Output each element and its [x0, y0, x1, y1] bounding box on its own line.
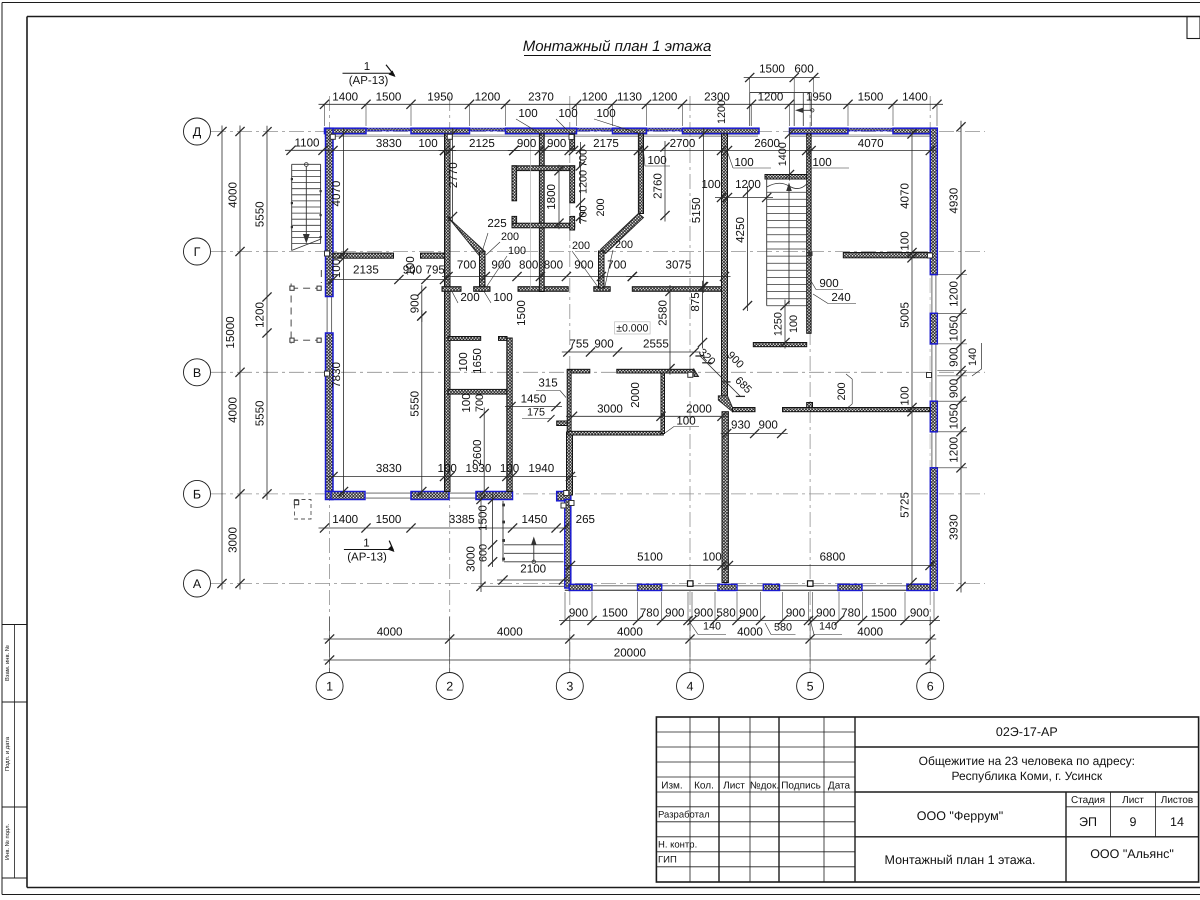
svg-text:225: 225	[487, 217, 506, 230]
svg-text:100: 100	[647, 154, 666, 167]
svg-text:700: 700	[578, 149, 590, 167]
svg-text:1: 1	[364, 61, 370, 73]
svg-text:900: 900	[517, 137, 536, 150]
svg-text:700: 700	[607, 259, 626, 272]
svg-text:600: 600	[478, 544, 490, 562]
svg-text:900: 900	[403, 264, 422, 277]
svg-text:1200: 1200	[948, 437, 961, 463]
svg-text:20000: 20000	[614, 647, 646, 660]
svg-text:4250: 4250	[734, 217, 747, 243]
svg-text:Дата: Дата	[828, 781, 851, 792]
svg-text:900: 900	[409, 294, 422, 313]
svg-text:1400: 1400	[332, 513, 358, 526]
svg-text:5550: 5550	[254, 401, 267, 427]
svg-text:100: 100	[596, 107, 615, 120]
svg-text:6: 6	[927, 680, 934, 694]
svg-text:2: 2	[446, 680, 453, 694]
svg-text:265: 265	[576, 513, 595, 526]
svg-text:100: 100	[899, 386, 912, 405]
svg-text:140: 140	[703, 621, 721, 633]
svg-text:5550: 5550	[254, 201, 267, 227]
svg-text:6800: 6800	[820, 551, 846, 564]
svg-text:900: 900	[948, 379, 961, 398]
svg-text:900: 900	[594, 338, 613, 351]
svg-text:1200: 1200	[475, 90, 501, 103]
svg-text:2600: 2600	[471, 440, 484, 466]
svg-text:900: 900	[786, 607, 805, 620]
svg-text:2135: 2135	[353, 264, 379, 277]
svg-text:100: 100	[788, 315, 800, 333]
svg-text:4: 4	[687, 680, 694, 694]
svg-text:15000: 15000	[224, 316, 237, 348]
svg-text:200: 200	[615, 239, 633, 251]
svg-text:5005: 5005	[899, 302, 912, 328]
svg-text:5150: 5150	[690, 197, 703, 223]
svg-text:755: 755	[569, 338, 588, 351]
svg-text:1500: 1500	[602, 607, 628, 620]
svg-text:Листов: Листов	[1161, 795, 1194, 806]
svg-text:100: 100	[518, 107, 537, 120]
svg-text:Республика Коми, г. Усинск: Республика Коми, г. Усинск	[951, 769, 1102, 783]
svg-text:2000: 2000	[629, 382, 642, 408]
svg-text:1200: 1200	[578, 170, 590, 194]
svg-text:4000: 4000	[227, 182, 240, 208]
svg-text:1500: 1500	[376, 90, 402, 103]
svg-text:2175: 2175	[593, 137, 619, 150]
svg-text:Общежитие на 23 человека по ад: Общежитие на 23 человека по адресу:	[919, 754, 1135, 768]
svg-text:1200: 1200	[582, 90, 608, 103]
svg-text:1200: 1200	[948, 281, 961, 307]
svg-text:100: 100	[558, 107, 577, 120]
svg-text:100: 100	[438, 462, 457, 475]
svg-text:ГИП: ГИП	[658, 855, 677, 866]
svg-text:9: 9	[1130, 815, 1137, 829]
svg-text:200: 200	[501, 231, 519, 243]
svg-text:1450: 1450	[521, 393, 547, 406]
svg-text:5725: 5725	[899, 492, 912, 518]
svg-text:1500: 1500	[515, 300, 528, 326]
svg-text:ООО "Альянс": ООО "Альянс"	[1090, 847, 1174, 861]
svg-text:100: 100	[701, 178, 720, 191]
svg-text:1130: 1130	[617, 90, 642, 103]
svg-text:Подп. и дата: Подп. и дата	[5, 736, 11, 771]
svg-text:200: 200	[572, 240, 590, 252]
svg-text:3000: 3000	[597, 403, 623, 416]
svg-text:Подпись: Подпись	[781, 781, 821, 792]
svg-text:Монтажный план 1 этажа: Монтажный план 1 этажа	[523, 38, 712, 55]
svg-text:1250: 1250	[773, 312, 785, 336]
svg-text:1940: 1940	[528, 462, 554, 475]
svg-text:3830: 3830	[376, 137, 402, 150]
svg-text:900: 900	[694, 607, 713, 620]
svg-text:1200: 1200	[716, 100, 728, 124]
svg-text:900: 900	[819, 277, 838, 290]
svg-text:Лист: Лист	[723, 781, 745, 792]
svg-text:1200: 1200	[254, 302, 267, 328]
svg-text:Г: Г	[194, 245, 201, 259]
svg-text:2600: 2600	[754, 137, 780, 150]
svg-text:(АР-13): (АР-13)	[349, 75, 389, 87]
svg-text:2580: 2580	[657, 300, 670, 326]
svg-text:780: 780	[640, 607, 659, 620]
svg-text:1050: 1050	[948, 404, 961, 430]
svg-text:4000: 4000	[497, 626, 523, 639]
svg-text:±0.000: ±0.000	[616, 322, 648, 334]
svg-text:100: 100	[899, 231, 912, 250]
svg-text:100: 100	[460, 393, 473, 412]
svg-text:580: 580	[716, 607, 735, 620]
svg-text:100: 100	[500, 462, 519, 475]
svg-text:1: 1	[326, 680, 333, 694]
svg-text:4000: 4000	[857, 626, 883, 639]
svg-text:В: В	[193, 366, 201, 380]
svg-text:900: 900	[910, 607, 929, 620]
svg-text:1400: 1400	[902, 90, 928, 103]
svg-text:240: 240	[831, 291, 850, 304]
svg-text:4000: 4000	[617, 626, 643, 639]
svg-text:Н. контр.: Н. контр.	[658, 840, 697, 851]
svg-text:7830: 7830	[330, 362, 343, 388]
svg-text:А: А	[193, 577, 202, 591]
svg-text:3: 3	[566, 680, 573, 694]
svg-text:2100: 2100	[520, 563, 546, 576]
svg-text:2555: 2555	[643, 338, 669, 351]
svg-text:14: 14	[1170, 815, 1184, 829]
svg-text:2760: 2760	[651, 173, 664, 199]
svg-text:5: 5	[807, 680, 814, 694]
svg-text:900: 900	[569, 607, 588, 620]
svg-text:Взам. инв. №: Взам. инв. №	[5, 645, 11, 681]
svg-text:1500: 1500	[871, 607, 897, 620]
svg-text:100: 100	[702, 551, 721, 564]
svg-text:175: 175	[527, 407, 545, 419]
svg-text:3385: 3385	[449, 513, 475, 526]
svg-text:(АР-13): (АР-13)	[347, 552, 387, 564]
svg-text:700: 700	[578, 205, 590, 223]
svg-text:3830: 3830	[376, 462, 402, 475]
svg-text:3000: 3000	[227, 527, 240, 553]
svg-text:Кол.: Кол.	[694, 781, 714, 792]
svg-text:100: 100	[734, 156, 753, 169]
svg-text:140: 140	[819, 621, 837, 633]
svg-text:ООО "Феррум": ООО "Феррум"	[917, 809, 1003, 823]
svg-text:Б: Б	[193, 487, 201, 501]
svg-text:4070: 4070	[899, 183, 912, 209]
svg-text:900: 900	[739, 607, 758, 620]
svg-text:600: 600	[794, 63, 813, 76]
svg-text:800: 800	[519, 259, 538, 272]
svg-text:3930: 3930	[948, 514, 961, 540]
svg-text:780: 780	[841, 607, 860, 620]
svg-text:100: 100	[812, 156, 831, 169]
svg-text:Лист: Лист	[1122, 795, 1144, 806]
svg-text:5550: 5550	[409, 391, 422, 417]
svg-text:1650: 1650	[471, 348, 484, 374]
svg-text:875: 875	[689, 292, 702, 311]
svg-text:580: 580	[774, 622, 792, 634]
svg-text:795: 795	[426, 264, 445, 277]
svg-text:900: 900	[665, 607, 684, 620]
svg-text:140: 140	[967, 348, 979, 366]
svg-text:1500: 1500	[376, 513, 402, 526]
svg-text:900: 900	[816, 607, 835, 620]
svg-text:100: 100	[676, 415, 695, 428]
svg-text:Разработал: Разработал	[658, 810, 710, 821]
svg-text:4930: 4930	[948, 188, 961, 214]
svg-text:200: 200	[460, 291, 479, 304]
svg-text:4000: 4000	[377, 626, 403, 639]
svg-text:1500: 1500	[858, 90, 884, 103]
svg-text:ЭП: ЭП	[1079, 815, 1097, 829]
svg-text:700: 700	[474, 394, 486, 412]
svg-text:900: 900	[948, 348, 961, 367]
svg-text:1950: 1950	[427, 90, 453, 103]
svg-text:3075: 3075	[666, 259, 692, 272]
svg-text:900: 900	[574, 259, 593, 272]
svg-text:930: 930	[731, 419, 750, 432]
svg-text:100: 100	[493, 291, 512, 304]
svg-text:4070: 4070	[330, 181, 343, 207]
svg-text:№док.: №док.	[750, 781, 779, 792]
svg-text:200: 200	[595, 198, 607, 216]
svg-text:Инв. № подл.: Инв. № подл.	[5, 824, 11, 860]
svg-text:Монтажный план 1 этажа.: Монтажный план 1 этажа.	[885, 853, 1036, 867]
svg-text:700: 700	[457, 259, 476, 272]
svg-text:2770: 2770	[447, 162, 460, 188]
svg-text:1200: 1200	[758, 90, 784, 103]
svg-text:1450: 1450	[522, 513, 548, 526]
svg-text:1200: 1200	[735, 178, 761, 191]
svg-text:4070: 4070	[858, 137, 884, 150]
svg-text:1100: 1100	[295, 137, 320, 150]
svg-text:1050: 1050	[948, 316, 961, 342]
svg-text:Д: Д	[193, 125, 202, 139]
svg-text:Стадия: Стадия	[1071, 795, 1105, 806]
svg-text:1950: 1950	[806, 90, 832, 103]
svg-text:4000: 4000	[737, 626, 763, 639]
svg-text:2125: 2125	[469, 137, 495, 150]
svg-text:Изм.: Изм.	[661, 781, 682, 792]
svg-text:200: 200	[836, 382, 848, 400]
svg-text:1500: 1500	[477, 505, 490, 531]
svg-text:900: 900	[759, 419, 778, 432]
svg-text:3000: 3000	[465, 546, 478, 572]
svg-text:315: 315	[538, 377, 557, 390]
svg-text:1500: 1500	[759, 63, 785, 76]
svg-text:1400: 1400	[777, 142, 789, 166]
svg-text:100: 100	[508, 245, 526, 257]
svg-text:100: 100	[418, 137, 437, 150]
svg-text:1: 1	[363, 538, 369, 550]
svg-text:1800: 1800	[545, 184, 558, 210]
svg-text:4000: 4000	[227, 397, 240, 423]
svg-text:5100: 5100	[637, 551, 663, 564]
svg-text:02Э-17-АР: 02Э-17-АР	[996, 725, 1058, 739]
svg-text:2370: 2370	[528, 90, 554, 103]
svg-text:1400: 1400	[332, 90, 358, 103]
svg-text:900: 900	[547, 137, 566, 150]
svg-text:800: 800	[544, 259, 563, 272]
svg-text:1200: 1200	[652, 90, 678, 103]
svg-text:2700: 2700	[670, 137, 696, 150]
svg-text:100: 100	[457, 352, 470, 371]
